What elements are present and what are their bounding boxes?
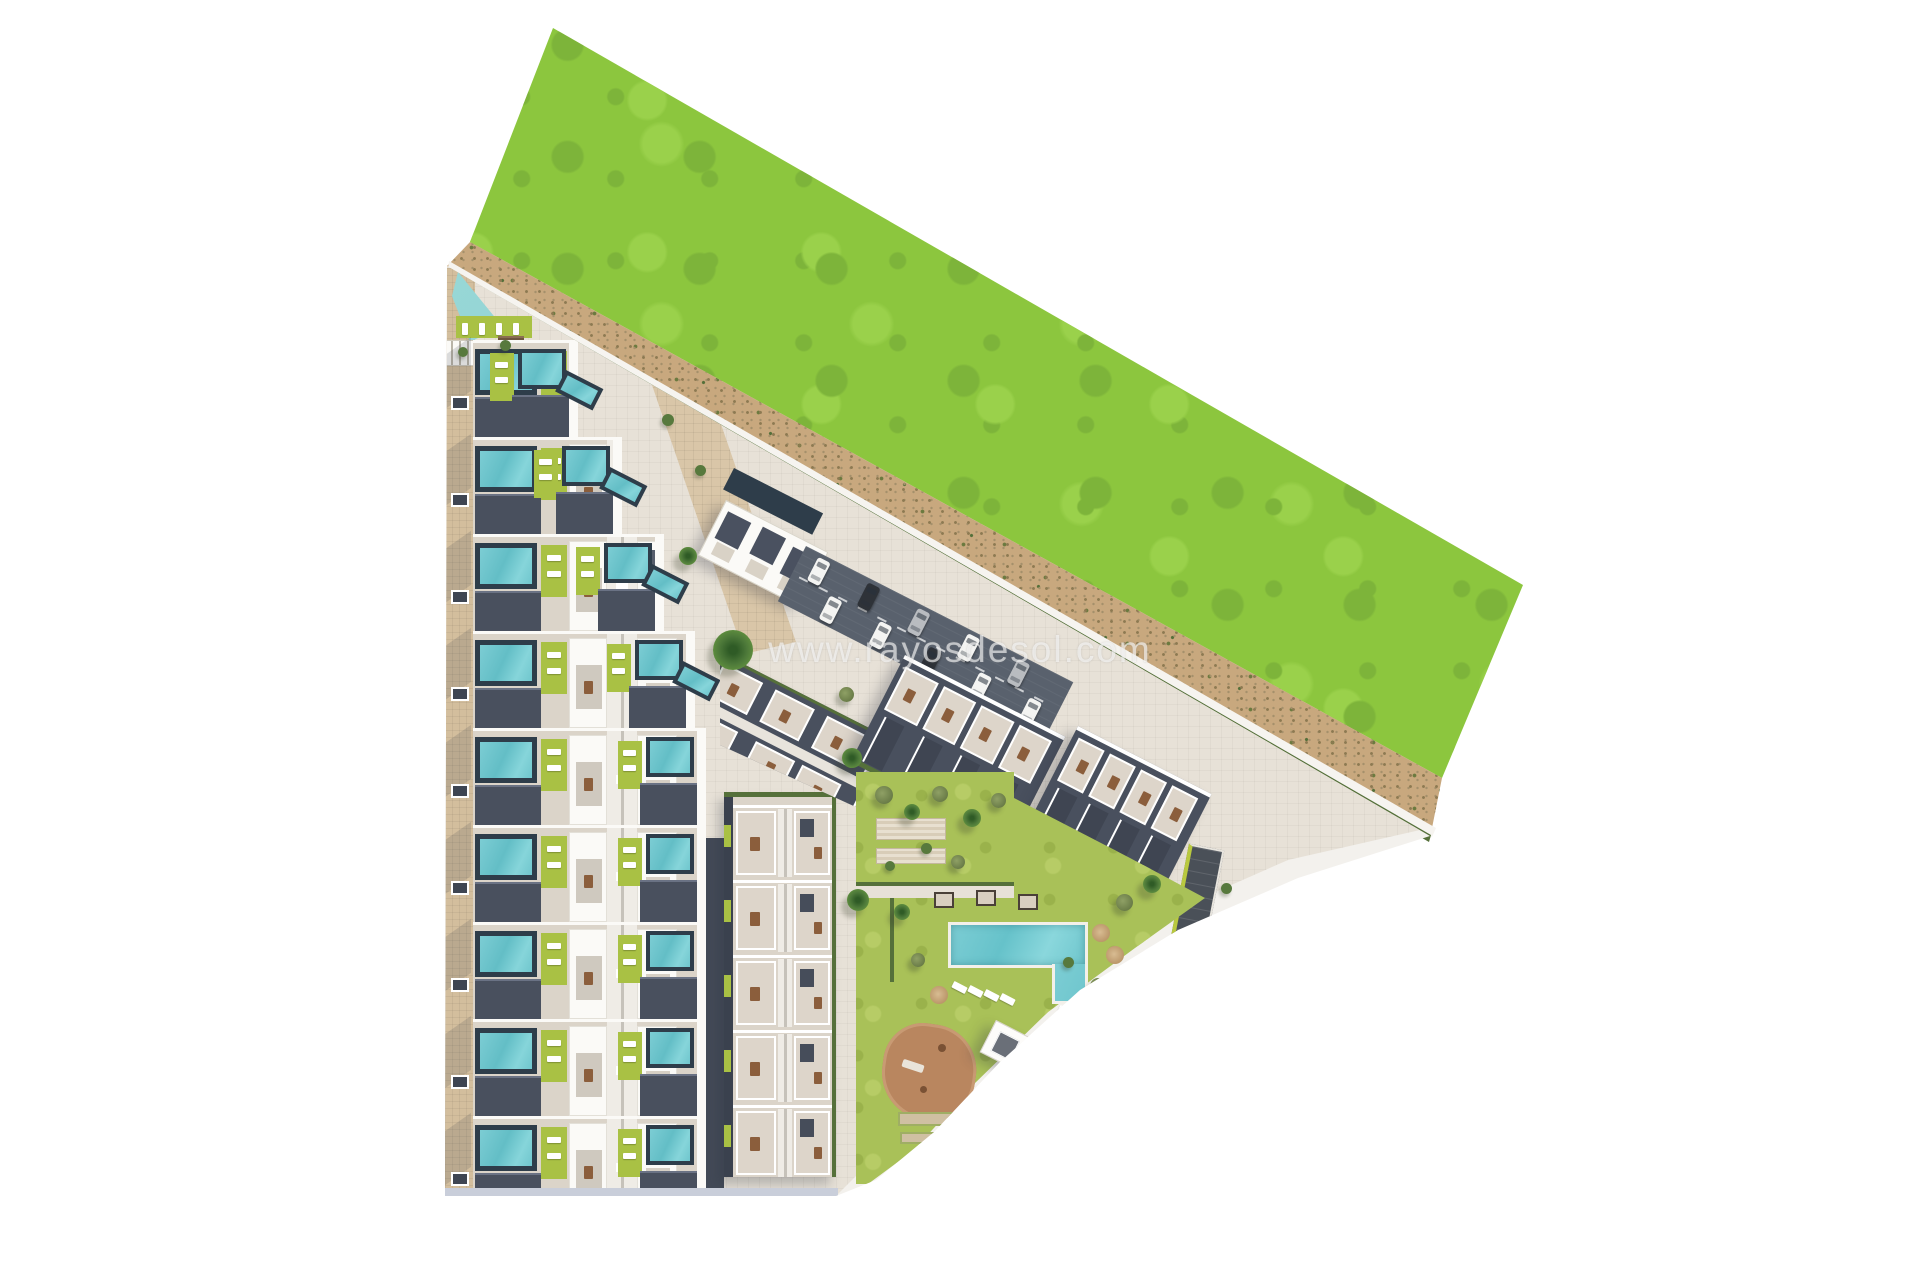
roof-terrace-dark	[475, 785, 541, 825]
sun-lounger	[547, 765, 561, 771]
terrace-furniture	[940, 707, 954, 723]
car	[807, 557, 831, 587]
terrace-furniture	[584, 681, 593, 694]
watermark-text: www.rayosdesol.com	[768, 629, 1152, 671]
parasol	[1106, 946, 1124, 964]
tree-palm	[713, 630, 753, 670]
corridor	[778, 809, 792, 877]
corridor-line	[784, 1109, 787, 1177]
sun-lounger	[547, 571, 561, 577]
tree-olive	[875, 786, 893, 804]
balcony	[451, 1172, 469, 1186]
tree-palm	[679, 547, 697, 565]
car-windshield	[816, 561, 827, 570]
car-windshield	[916, 612, 927, 621]
lime-accent	[724, 900, 731, 922]
lawn-strip	[618, 741, 642, 789]
roof-terrace-dark	[475, 1076, 541, 1116]
sun-lounger	[1057, 1005, 1074, 1018]
tree-olive	[839, 687, 854, 702]
tree-olive	[911, 953, 925, 967]
roof-section-dark	[800, 819, 814, 837]
pool-water	[650, 838, 690, 870]
private-pool	[646, 737, 694, 777]
tree-shrub	[1063, 957, 1074, 968]
terrace-furniture	[830, 735, 843, 750]
roof-section-dark	[800, 969, 814, 987]
solar-panel	[1040, 1057, 1070, 1087]
tree-shrub	[458, 347, 468, 357]
terrace-furniture	[778, 709, 791, 724]
parapet	[733, 805, 832, 808]
end-wall	[697, 828, 706, 922]
tree-palm	[842, 748, 862, 768]
roof-terrace-dark	[475, 882, 541, 922]
tree-olive	[991, 793, 1006, 808]
sun-lounger	[623, 1153, 636, 1159]
private-pool	[646, 1028, 694, 1068]
sun-lounger	[547, 1153, 561, 1159]
terrace-furniture	[750, 912, 760, 926]
private-pool	[475, 1125, 537, 1171]
car-windshield	[866, 587, 877, 596]
parapet	[733, 1030, 832, 1033]
roof-terrace-cell	[736, 886, 776, 950]
terrace-furniture	[750, 987, 760, 1001]
roof-terrace-dark	[475, 591, 541, 631]
private-pool	[475, 446, 537, 492]
petanque-court	[898, 1112, 966, 1126]
parapet	[733, 880, 832, 883]
townhouse-volume	[569, 735, 607, 825]
pool-water	[608, 547, 648, 579]
townhouse-volume	[569, 929, 607, 1019]
car-rear-window	[860, 599, 871, 607]
pool-water	[650, 935, 690, 967]
roof-terrace-dark	[640, 783, 698, 825]
lawn-strip	[576, 547, 600, 595]
pool-water	[639, 644, 679, 676]
lime-accent	[724, 825, 731, 847]
roof-terrace-dark	[475, 494, 541, 534]
tree-shrub	[1221, 883, 1232, 894]
tree-palm	[963, 809, 981, 827]
terrace-furniture	[814, 847, 822, 859]
end-wall	[697, 1022, 706, 1116]
townhouse-volume	[569, 832, 607, 922]
solar-panel	[1015, 1044, 1045, 1074]
terrace-furniture	[1075, 759, 1089, 775]
townhouse-row	[473, 922, 706, 1019]
tree-shrub	[885, 861, 895, 871]
roof-terrace-dark	[556, 492, 614, 534]
sun-lounger	[1099, 1017, 1116, 1030]
solar-panel	[990, 1031, 1020, 1061]
parasol	[930, 986, 948, 1004]
sun-lounger	[623, 1041, 636, 1047]
lawn-strip	[534, 450, 558, 498]
pool-water	[650, 741, 690, 773]
balcony	[451, 784, 469, 798]
pool-water	[566, 450, 606, 482]
balcony	[451, 687, 469, 701]
roof-terrace-cell	[794, 886, 830, 950]
townhouse-row	[473, 631, 695, 728]
lawn-strip	[618, 838, 642, 886]
parasol	[1092, 924, 1110, 942]
private-pool	[475, 543, 537, 589]
terrace-furniture	[1138, 791, 1152, 807]
terrace-furniture	[750, 1062, 760, 1076]
south-curb	[445, 1188, 838, 1200]
tree-palm	[894, 904, 910, 920]
terrace-furniture	[584, 972, 593, 985]
end-wall	[697, 1119, 706, 1213]
lawn-strip	[541, 545, 567, 597]
roof-terrace-cell	[736, 1111, 776, 1175]
sun-lounger	[495, 362, 508, 368]
corridor-line	[784, 959, 787, 1027]
roof-terrace-dark	[475, 979, 541, 1019]
terrace-furniture	[584, 1166, 593, 1179]
pool-water	[480, 936, 532, 972]
sun-lounger	[1085, 1013, 1102, 1026]
sun-lounger	[612, 668, 625, 674]
tree-shrub	[921, 843, 932, 854]
parapet	[733, 955, 832, 958]
car-rear-window	[822, 612, 833, 620]
lawn-strip	[541, 933, 567, 985]
pool-water	[480, 451, 532, 487]
private-pool	[475, 640, 537, 686]
sun-lounger	[547, 749, 561, 755]
car	[857, 582, 881, 612]
corridor-line	[784, 884, 787, 952]
sun-lounger	[581, 571, 594, 577]
terrace-furniture	[902, 688, 916, 704]
service-driveway	[706, 838, 724, 1190]
tree-shrub	[500, 340, 511, 351]
tree-palm	[847, 889, 869, 911]
townhouse-row	[473, 825, 706, 922]
pool-water	[749, 483, 775, 508]
pool-water	[480, 1130, 532, 1166]
tree-palm	[955, 1109, 973, 1127]
balcony	[451, 978, 469, 992]
sun-lounger	[539, 459, 552, 465]
pool-cabana	[976, 890, 996, 906]
sun-lounger	[547, 1040, 561, 1046]
corridor-line	[784, 1034, 787, 1102]
terrace-furniture	[750, 1137, 760, 1151]
lawn-strip	[607, 644, 631, 692]
playground-equipment-dot	[920, 1086, 927, 1093]
lime-accent	[724, 1050, 731, 1072]
roof-section-dark	[800, 894, 814, 912]
private-pool	[646, 834, 694, 874]
sun-lounger	[612, 653, 625, 659]
roof-terrace-dark	[640, 880, 698, 922]
end-wall	[697, 731, 706, 825]
car-rear-window	[1010, 675, 1021, 683]
corridor-line	[784, 809, 787, 877]
sun-lounger	[623, 959, 636, 965]
townhouse-row	[473, 1116, 706, 1213]
sun-lounger	[547, 555, 561, 561]
tree-olive	[928, 1142, 941, 1155]
lawn-strip	[541, 642, 567, 694]
pool-water	[650, 1032, 690, 1064]
roof-terrace-cell	[736, 961, 776, 1025]
lawn-strip	[490, 353, 514, 401]
sun-lounger	[547, 652, 561, 658]
pool-water	[480, 645, 532, 681]
roof-terrace-dark	[598, 589, 656, 631]
lawn-strip	[618, 1032, 642, 1080]
parapet	[733, 1105, 832, 1108]
corridor	[778, 959, 792, 1027]
lawn-strip	[541, 1127, 567, 1179]
sun-lounger	[547, 846, 561, 852]
roof-terrace-cell	[794, 1036, 830, 1100]
corridor	[778, 1034, 792, 1102]
communal-pool-arm	[1052, 964, 1088, 1004]
corridor	[778, 884, 792, 952]
townhouse-volume	[569, 1123, 607, 1213]
private-pool	[475, 931, 537, 977]
tree-shrub	[662, 414, 674, 426]
tree-olive	[951, 855, 965, 869]
lime-accent	[724, 975, 731, 997]
roof-terrace-cell	[794, 811, 830, 875]
garden-hedge-north	[856, 882, 1014, 886]
sun-lounger	[547, 943, 561, 949]
terrace-furniture	[584, 778, 593, 791]
private-pool	[646, 1125, 694, 1165]
tree-olive	[932, 786, 948, 802]
tree-olive	[1116, 894, 1133, 911]
car-windshield	[828, 600, 839, 609]
tree-olive	[1090, 978, 1106, 994]
tree-palm	[904, 804, 920, 820]
roof-terrace-cell	[794, 961, 830, 1025]
sun-lounger	[623, 750, 636, 756]
sun-lounger	[547, 1056, 561, 1062]
terrace-furniture	[1169, 807, 1183, 823]
sun-lounger	[547, 959, 561, 965]
terrace-furniture	[814, 997, 822, 1009]
sun-lounger	[623, 1138, 636, 1144]
roof-section-dark	[749, 527, 786, 566]
lawn-strip	[618, 1129, 642, 1177]
site-plan-render: www.rayosdesol.com	[0, 0, 1920, 1280]
car-rear-window	[810, 574, 821, 582]
townhouse-row	[473, 728, 706, 825]
tree-palm	[1035, 1033, 1053, 1051]
playground-equipment-dot	[938, 1044, 946, 1052]
sun-lounger	[1071, 1009, 1088, 1022]
terrace-furniture	[726, 683, 739, 698]
balcony	[451, 493, 469, 507]
sun-lounger	[581, 556, 594, 562]
terrace-furniture	[584, 875, 593, 888]
roof-terrace-dark	[475, 688, 541, 728]
balcony	[451, 1075, 469, 1089]
roof-terrace-dark	[629, 686, 687, 728]
townhouse-volume	[569, 1026, 607, 1116]
middle-apartment-block	[724, 792, 836, 1177]
sun-lounger	[539, 474, 552, 480]
pool-water	[480, 742, 532, 778]
terrace-furniture	[1016, 746, 1030, 762]
sun-lounger	[623, 1056, 636, 1062]
lawn-strip	[541, 739, 567, 791]
terrace-furniture	[1107, 775, 1121, 791]
private-pool	[646, 931, 694, 971]
roof-terrace-cell	[736, 1036, 776, 1100]
lawn-strip	[618, 935, 642, 983]
pool-cabana	[934, 892, 954, 908]
private-pool	[475, 1028, 537, 1074]
private-pool	[475, 737, 537, 783]
pool-water	[480, 548, 532, 584]
sun-lounger	[547, 668, 561, 674]
roof-section-dark	[862, 717, 904, 772]
terrace-furniture	[584, 1069, 593, 1082]
balcony	[451, 396, 469, 410]
private-pool	[475, 834, 537, 880]
terrace-furniture	[814, 1072, 822, 1084]
terrace-furniture	[978, 727, 992, 743]
sun-lounger	[623, 847, 636, 853]
roof-section-dark	[800, 1119, 814, 1137]
roof-terrace-dark	[640, 977, 698, 1019]
roof-terrace-dark	[512, 395, 570, 437]
car-windshield	[978, 676, 989, 685]
pergola	[876, 818, 946, 840]
sun-lounger	[623, 765, 636, 771]
sun-lounger	[547, 1137, 561, 1143]
corridor	[778, 1109, 792, 1177]
car-windshield	[1028, 702, 1039, 711]
pool-water	[480, 839, 532, 875]
terrace-furniture	[814, 1147, 822, 1159]
end-wall	[697, 925, 706, 1019]
pool-water	[650, 1129, 690, 1161]
sun-lounger	[495, 377, 508, 383]
balcony	[451, 590, 469, 604]
lawn-strip	[541, 1030, 567, 1082]
lawn-strip	[541, 836, 567, 888]
roof-terrace-dark	[640, 1074, 698, 1116]
roof-terrace-cell	[736, 811, 776, 875]
lime-accent	[724, 1125, 731, 1147]
townhouse-row	[473, 534, 664, 631]
car	[818, 595, 842, 625]
pool-water	[727, 472, 753, 497]
tree-shrub	[695, 465, 706, 476]
roof-section-dark	[800, 1044, 814, 1062]
pool-water	[480, 1033, 532, 1069]
balcony	[451, 881, 469, 895]
pool-water	[772, 495, 798, 520]
sun-lounger	[623, 944, 636, 950]
terrace-furniture	[750, 837, 760, 851]
tree-olive	[1001, 1071, 1016, 1086]
terrace-furniture	[814, 922, 822, 934]
pool-water	[522, 353, 562, 385]
townhouse-volume	[569, 638, 607, 728]
pool-cabana	[1018, 894, 1038, 910]
townhouse-row	[473, 1019, 706, 1116]
sun-lounger	[547, 862, 561, 868]
roof-terrace-cell	[794, 1111, 830, 1175]
petanque-court	[900, 1132, 964, 1144]
tree-palm	[1143, 875, 1161, 893]
sun-lounger	[623, 862, 636, 868]
